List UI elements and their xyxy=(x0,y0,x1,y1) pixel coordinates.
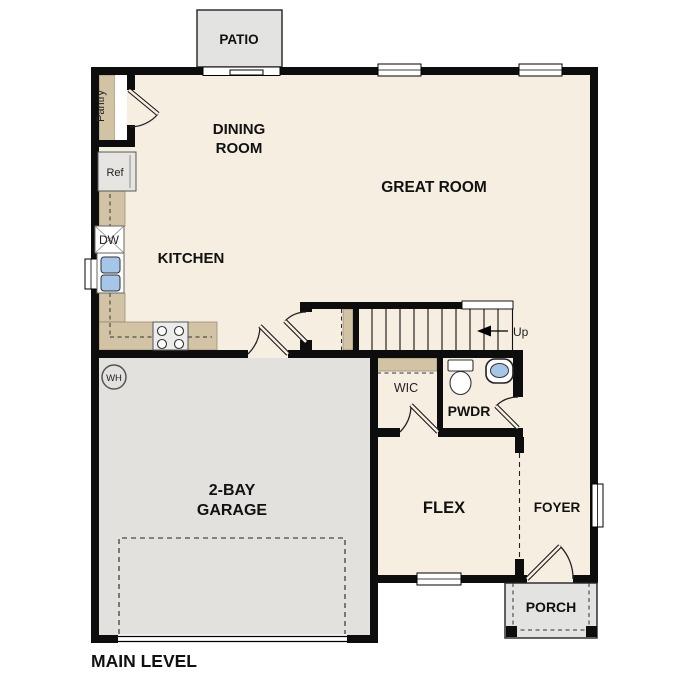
wall-stairs-top xyxy=(300,302,462,309)
porch-post xyxy=(586,626,597,637)
toilet-tank xyxy=(448,360,473,371)
burner xyxy=(158,327,167,336)
sink-basin xyxy=(101,257,120,273)
foyer-label: FOYER xyxy=(534,500,581,515)
wall-pantry-bottom xyxy=(91,140,135,147)
main-level-caption: MAIN LEVEL xyxy=(91,651,197,671)
flex-label: FLEX xyxy=(423,499,465,517)
counter-lower xyxy=(99,293,125,322)
wall-foyer-stub-top xyxy=(515,437,524,453)
pantry-label: Pantry xyxy=(95,90,107,122)
pantry-floor xyxy=(115,75,127,140)
wall-pantry-stub-top xyxy=(127,67,135,90)
hall-closet-shelf xyxy=(343,309,353,350)
toilet-bowl xyxy=(450,372,471,395)
patio-label: PATIO xyxy=(219,32,258,47)
dw-label: DW xyxy=(99,233,120,247)
wall-closet-stairs xyxy=(353,308,359,350)
pwdr-label: PWDR xyxy=(448,403,491,419)
great-room-label: GREAT ROOM xyxy=(381,179,487,196)
floor-plan-svg: PATIO xyxy=(0,0,687,687)
porch-label: PORCH xyxy=(526,599,577,615)
wic-shelf xyxy=(375,358,437,371)
wall-wic-bottom-left xyxy=(370,428,400,437)
wic-label: WIC xyxy=(394,381,418,395)
burner xyxy=(158,340,167,349)
wall-pwdr-bottom xyxy=(438,428,523,437)
sink-basin xyxy=(101,275,120,291)
stairs-landing xyxy=(462,301,513,309)
up-label: Up xyxy=(513,325,529,339)
wh-label: WH xyxy=(106,373,122,384)
wall-pwdr-right xyxy=(513,358,523,397)
counter-upper xyxy=(99,191,125,226)
wall-garage-right xyxy=(370,350,378,583)
front-door-opening xyxy=(527,575,573,583)
ref-label: Ref xyxy=(106,167,124,179)
wall-step xyxy=(370,575,378,643)
dining-room-label-line2: ROOM xyxy=(216,140,263,157)
wall-hall-door-stub-top xyxy=(300,302,312,312)
porch-area: PORCH xyxy=(505,583,597,638)
burner xyxy=(175,340,184,349)
kitchen-label: KITCHEN xyxy=(158,250,225,267)
garage-overhead-door xyxy=(118,635,347,645)
pwdr-sink-basin xyxy=(491,364,509,378)
dining-room-label-line1: DINING xyxy=(213,121,266,138)
wall-wic-divider xyxy=(437,358,443,428)
patio-area: PATIO xyxy=(197,10,282,67)
garage-label-line2: GARAGE xyxy=(197,502,268,519)
wall-foyer-stub-bottom xyxy=(515,559,524,575)
burner xyxy=(175,327,184,336)
floor-plan: PATIO xyxy=(0,0,687,687)
garage-label-line1: 2-BAY xyxy=(209,482,256,499)
porch-post xyxy=(506,626,517,637)
patio-slider-panel xyxy=(230,70,263,75)
